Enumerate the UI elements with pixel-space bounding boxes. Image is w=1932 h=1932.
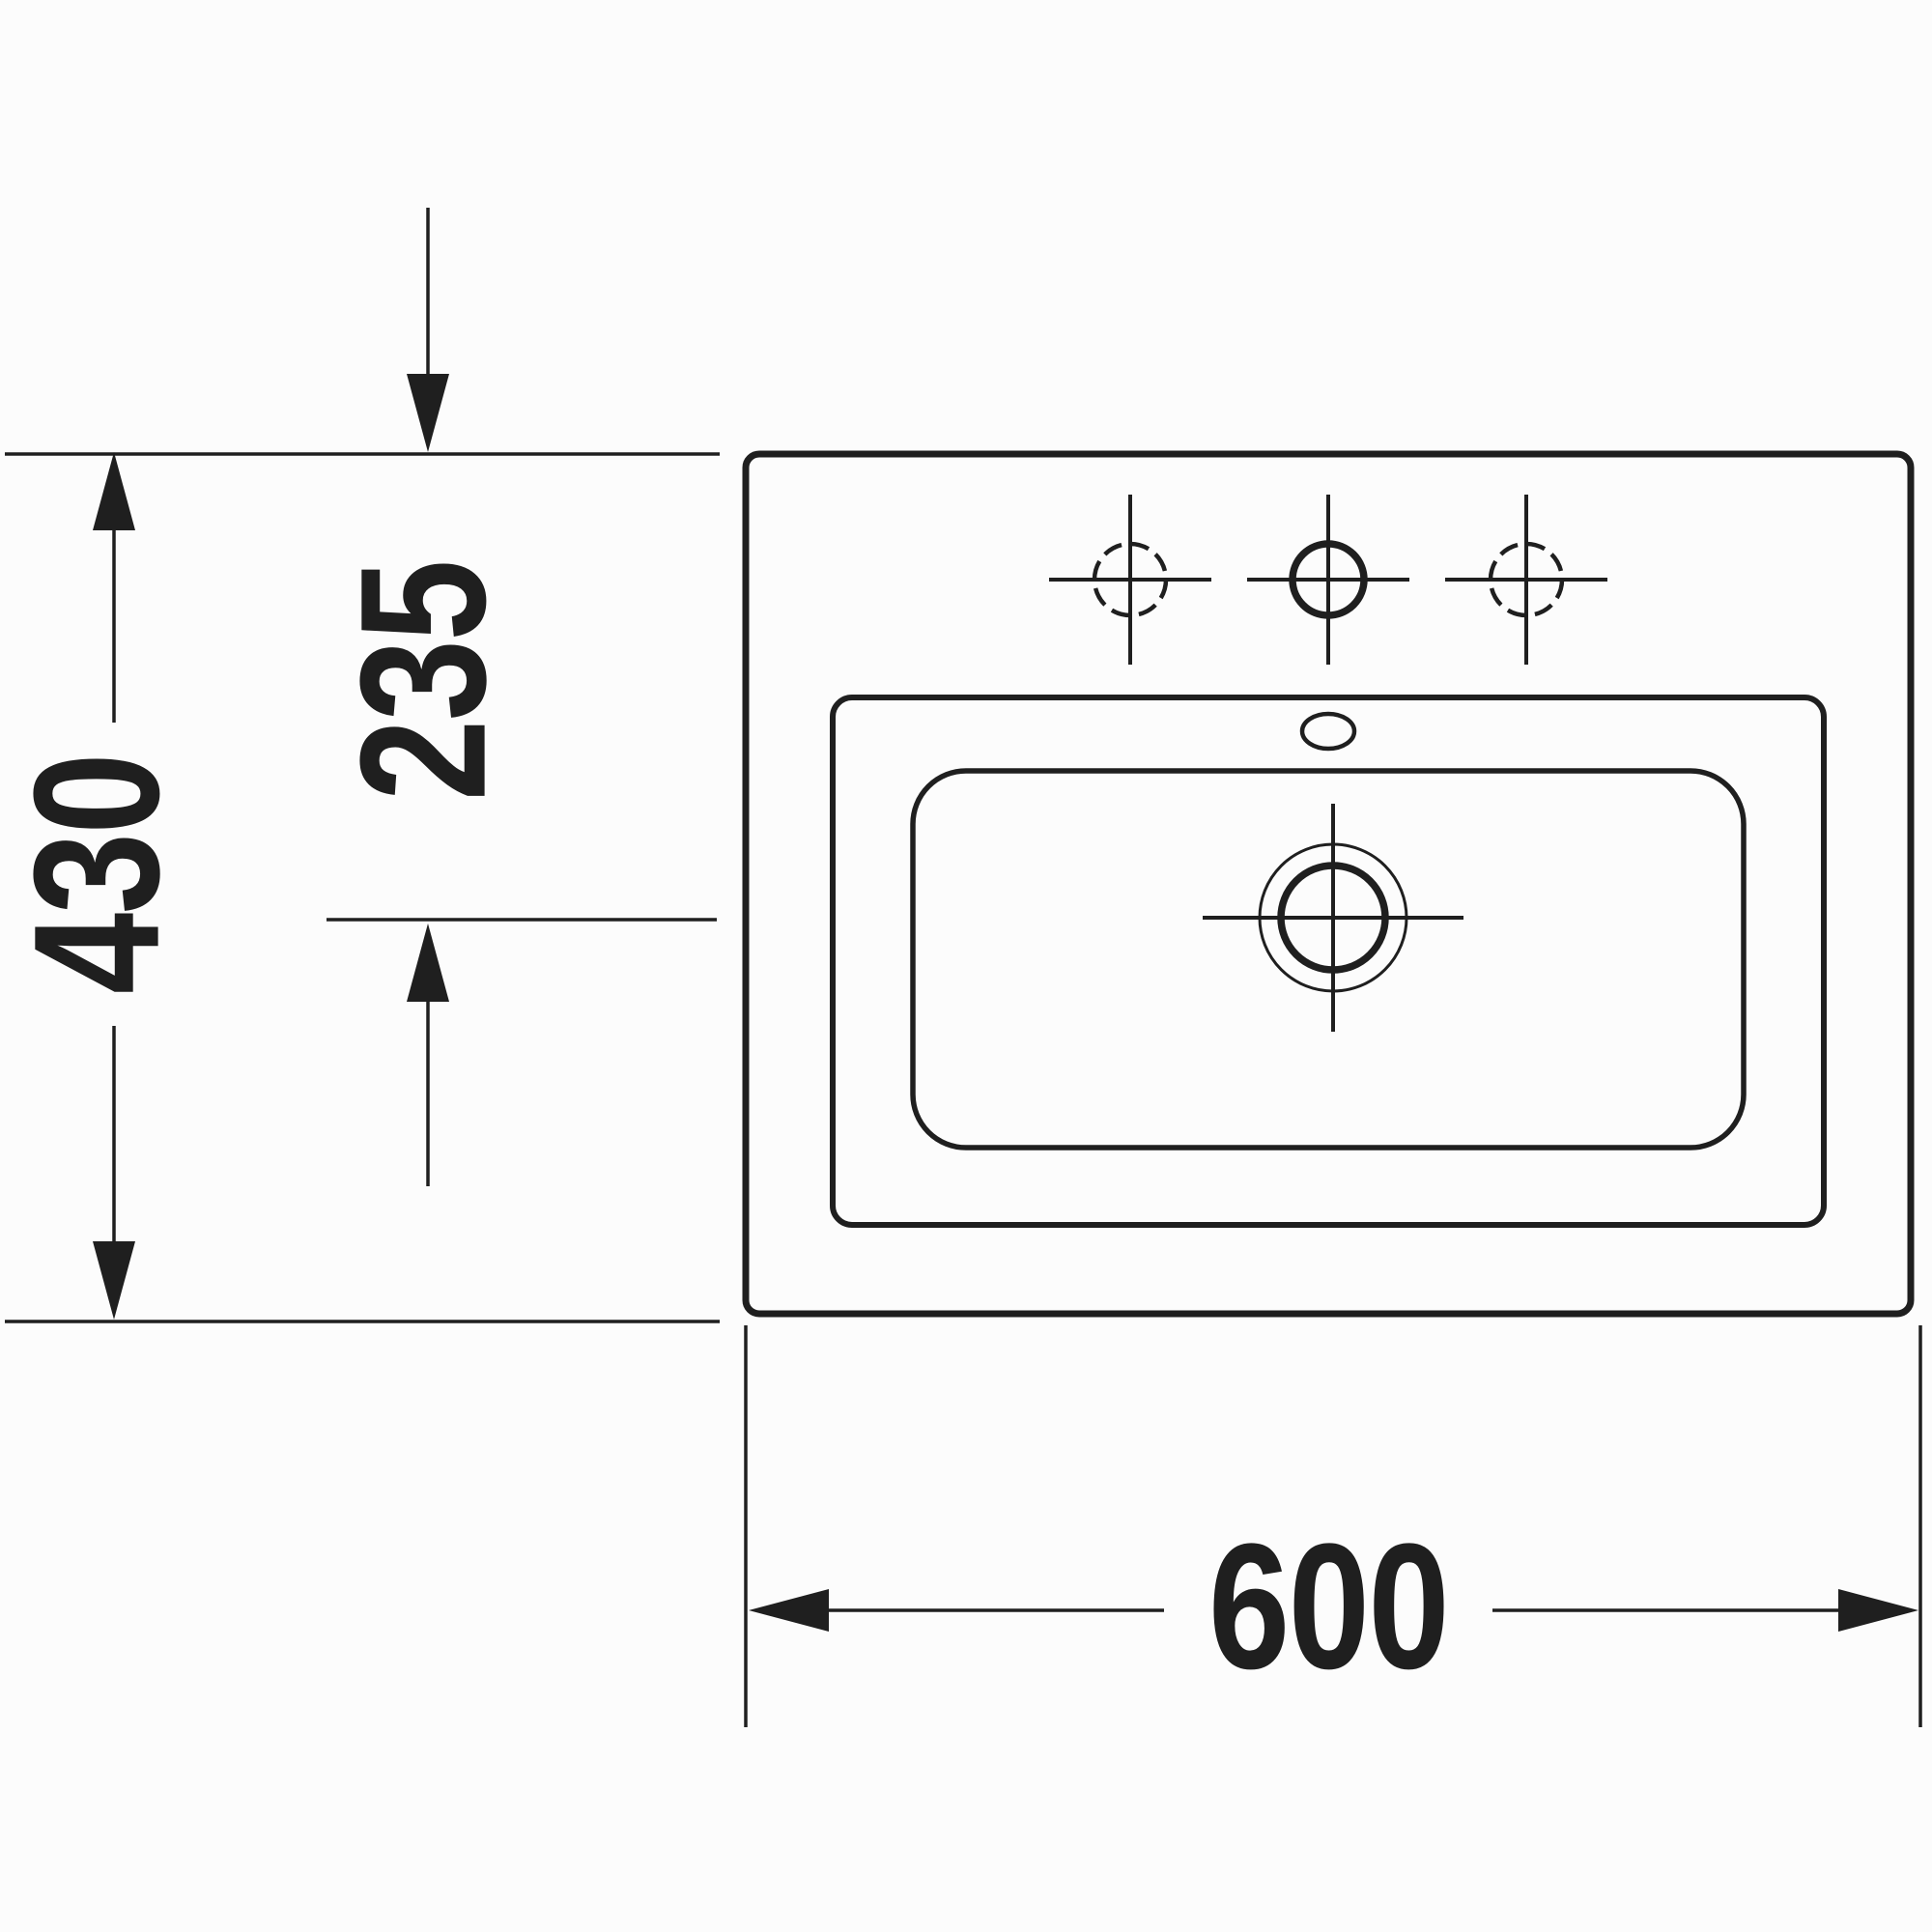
faucet-hole-left	[1049, 495, 1211, 665]
dim-drain-offset: 235	[323, 208, 523, 1186]
drawing-canvas: 430 235 600	[0, 0, 1932, 1932]
drain	[1203, 804, 1463, 1032]
basin-bowl-outline	[913, 771, 1744, 1148]
dim-offset-label: 235	[323, 561, 523, 801]
faucet-hole-right	[1445, 495, 1607, 665]
dim-depth-arrow-bottom	[93, 1241, 135, 1320]
dim-depth-arrow-top	[93, 452, 135, 530]
dim-depth-label: 430	[0, 754, 196, 994]
dim-offset-arrow-bottom	[407, 923, 449, 1002]
dim-offset-arrow-top	[407, 374, 449, 452]
dim-width: 600	[749, 1506, 1918, 1706]
dim-depth: 430	[0, 452, 196, 1320]
dim-width-arrow-right	[1838, 1589, 1918, 1632]
overflow-hole	[1302, 714, 1354, 749]
dim-width-label: 600	[1208, 1506, 1448, 1706]
dim-width-arrow-left	[749, 1589, 829, 1632]
faucet-hole-center	[1247, 495, 1409, 665]
